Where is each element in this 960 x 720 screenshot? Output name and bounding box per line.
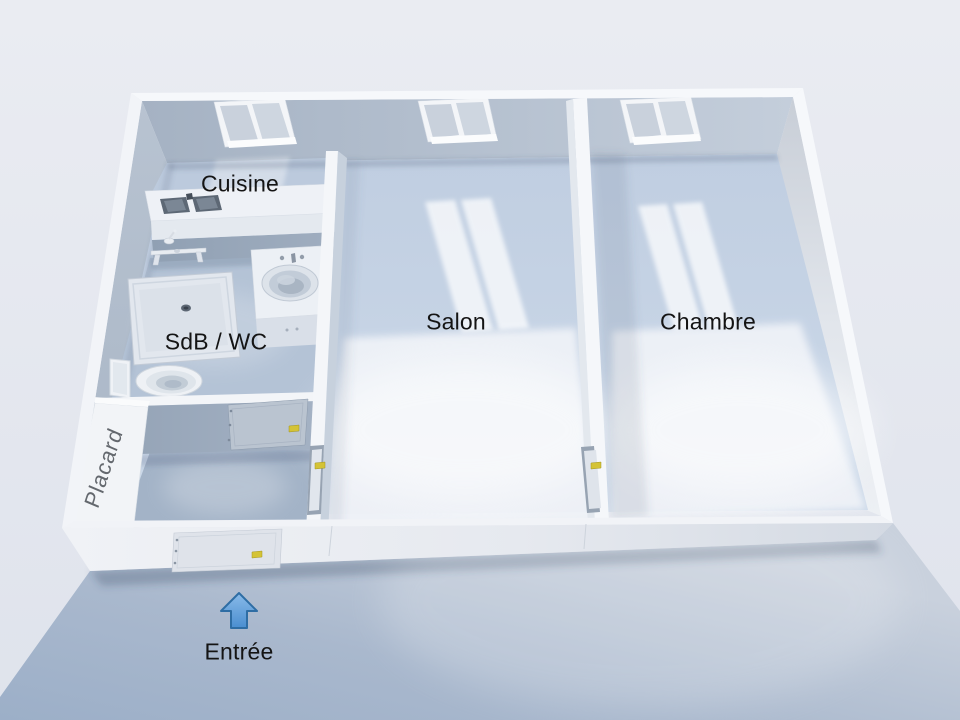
room-label-chambre: Chambre [660,309,756,336]
chambre-door-handle-icon [591,462,601,469]
room-label-salon: Salon [426,309,486,336]
room-label-cuisine: Cuisine [201,171,279,198]
sdb-door-handle-icon [289,425,299,432]
window-chambre [620,97,701,145]
salon-door-handle-icon [315,462,325,469]
floor-plan-render: Cuisine SdB / WC Salon Chambre Placard E… [0,0,960,720]
window-salon [418,98,498,144]
window-cuisine [214,99,297,148]
entry-door-handle-icon [252,551,262,558]
entry-label: Entrée [205,639,274,666]
entry-door [172,529,282,572]
room-label-sdb-wc: SdB / WC [165,329,268,356]
sdb-door [228,399,308,450]
floor-plan-3d-view [0,0,960,720]
